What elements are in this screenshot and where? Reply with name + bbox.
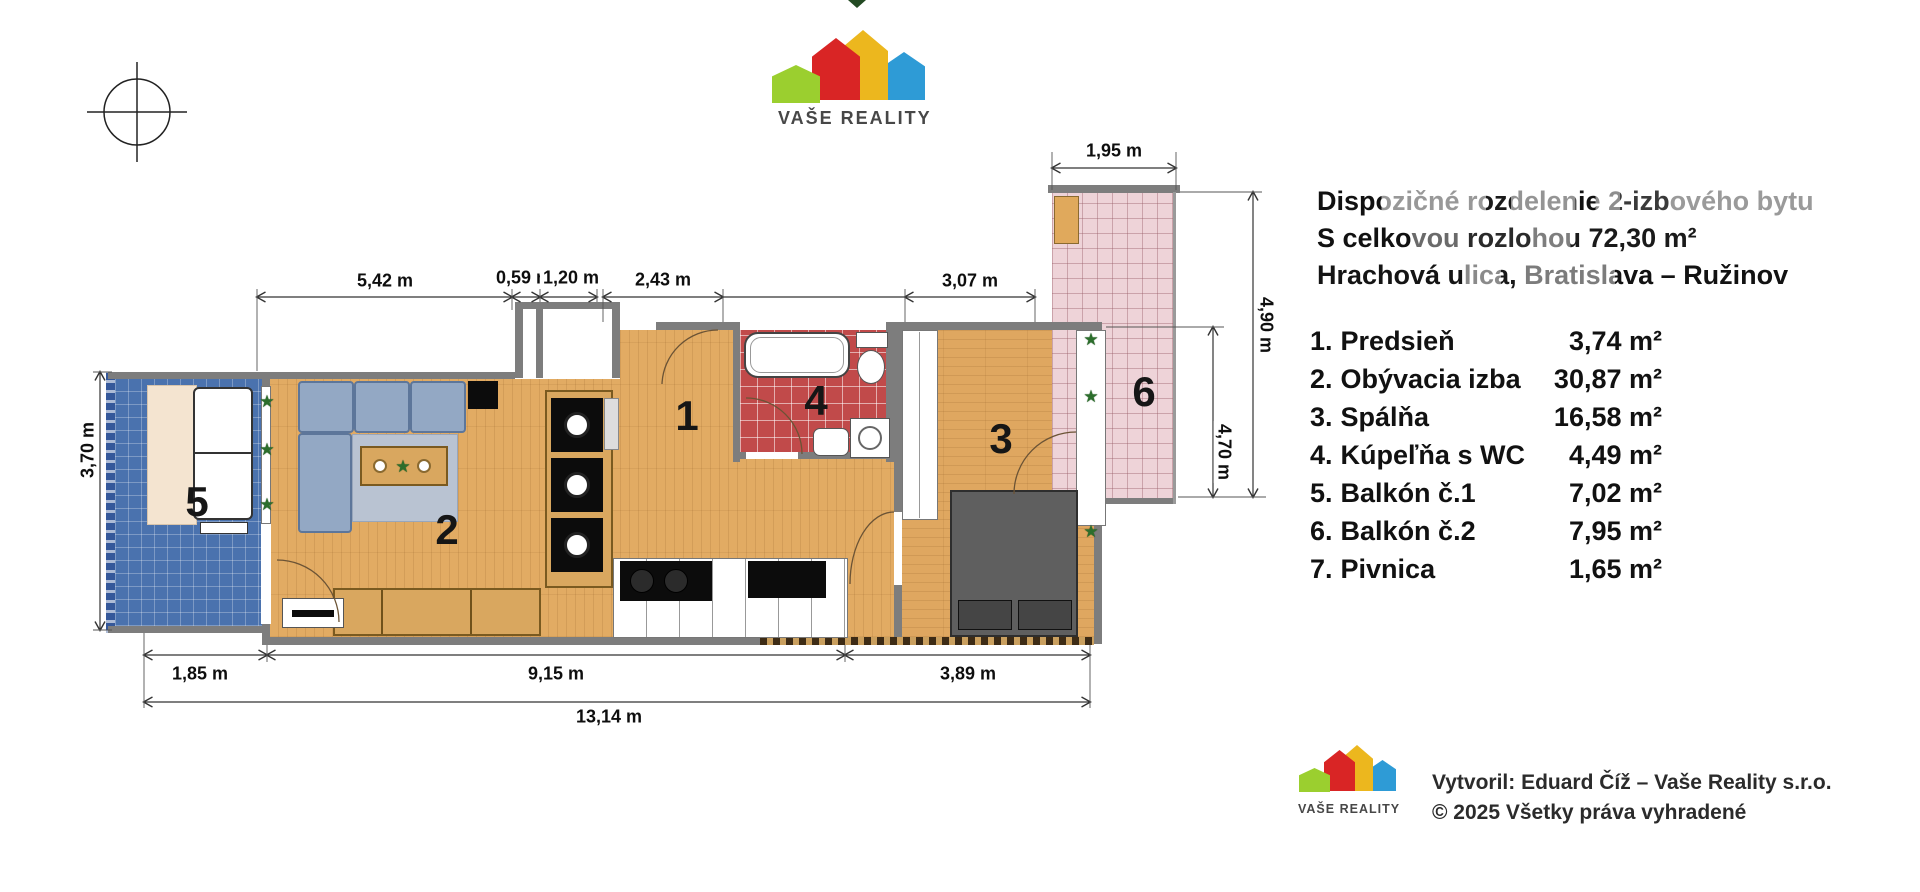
- room-label-2: 2: [435, 506, 458, 554]
- dim-label: 1,20 m: [540, 268, 602, 289]
- dim-label: 5,42 m: [354, 271, 416, 292]
- footer-logo-text: VAŠE REALITY: [1298, 802, 1400, 816]
- room-label-1: 1: [675, 392, 698, 440]
- footer-logo: VAŠE REALITY: [1296, 742, 1406, 822]
- footer-credits: Vytvoril: Eduard Číž – Vaše Reality s.r.…: [1432, 768, 1832, 828]
- door-arcs: [277, 330, 1076, 622]
- footer-credit-line-1: Vytvoril: Eduard Číž – Vaše Reality s.r.…: [1432, 768, 1832, 798]
- dim-label: 1,85 m: [169, 664, 231, 685]
- dim-label: 4,90 m: [1256, 294, 1277, 356]
- dim-label: 3,70 m: [78, 419, 99, 481]
- room-label-3: 3: [989, 415, 1012, 463]
- footer-logo-house-blue-icon: [1369, 760, 1396, 791]
- dim-label: 3,07 m: [939, 271, 1001, 292]
- dim-label: 3,89 m: [937, 664, 999, 685]
- dim-label: 1,95 m: [1083, 141, 1145, 162]
- room-label-4: 4: [804, 377, 827, 425]
- dim-label: 4,70 m: [1214, 421, 1235, 483]
- dim-label: 2,43 m: [632, 270, 694, 291]
- room-label-6: 6: [1132, 368, 1155, 416]
- footer-credit-line-2: © 2025 Všetky práva vyhradené: [1432, 798, 1832, 828]
- compass-icon: [87, 62, 187, 162]
- room-label-5: 5: [185, 478, 208, 526]
- dim-label: 13,14 m: [573, 707, 645, 728]
- dim-label: 9,15 m: [525, 664, 587, 685]
- plan-linework: [0, 0, 1920, 892]
